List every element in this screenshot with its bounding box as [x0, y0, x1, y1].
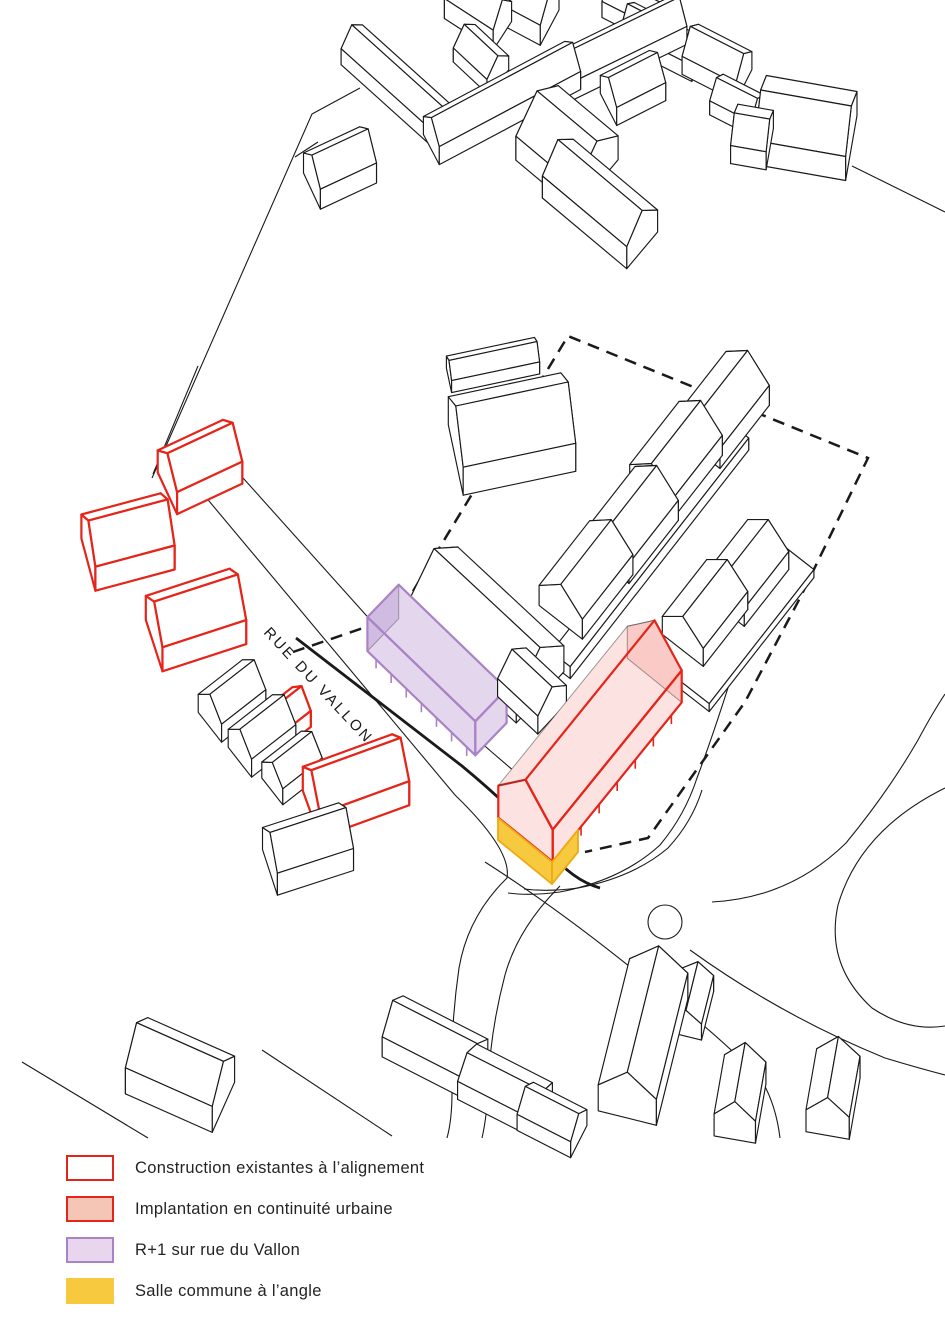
- legend-swatch-r1-vallon: [66, 1237, 114, 1263]
- building: [714, 1043, 766, 1144]
- building: [539, 520, 633, 640]
- building: [517, 1082, 587, 1157]
- building: [448, 373, 575, 495]
- legend-item-salle-commune: Salle commune à l’angle: [66, 1278, 322, 1304]
- legend-item-existing: Construction existantes à l’alignement: [66, 1155, 424, 1181]
- road-line: [835, 788, 945, 1027]
- building: [304, 127, 377, 209]
- legend-label-salle-commune: Salle commune à l’angle: [135, 1282, 322, 1301]
- building: [263, 803, 354, 895]
- building-existing-red: [158, 420, 243, 514]
- building: [806, 1037, 860, 1140]
- building: [731, 104, 774, 170]
- building: [125, 1018, 234, 1133]
- roundabout: [648, 905, 682, 939]
- building-existing-red: [81, 493, 174, 590]
- legend-item-r1-vallon: R+1 sur rue du Vallon: [66, 1237, 300, 1263]
- legend-label-existing: Construction existantes à l’alignement: [135, 1159, 424, 1178]
- site-plan-page: RUE DU VALLON Construction existantes à …: [0, 0, 945, 1339]
- legend-swatch-existing: [66, 1155, 114, 1181]
- site-plan-drawing: RUE DU VALLON: [0, 0, 945, 1339]
- legend-item-implantation: Implantation en continuité urbaine: [66, 1196, 393, 1222]
- building: [598, 946, 688, 1125]
- legend-label-r1-vallon: R+1 sur rue du Vallon: [135, 1241, 300, 1260]
- legend-label-implantation: Implantation en continuité urbaine: [135, 1200, 393, 1219]
- legend-swatch-salle-commune: [66, 1278, 114, 1304]
- legend-swatch-implantation: [66, 1196, 114, 1222]
- road-line: [262, 1050, 392, 1136]
- road-line: [852, 166, 945, 212]
- road-line: [712, 694, 945, 902]
- generated-drawing: [22, 0, 945, 1158]
- building-existing-red: [146, 569, 246, 672]
